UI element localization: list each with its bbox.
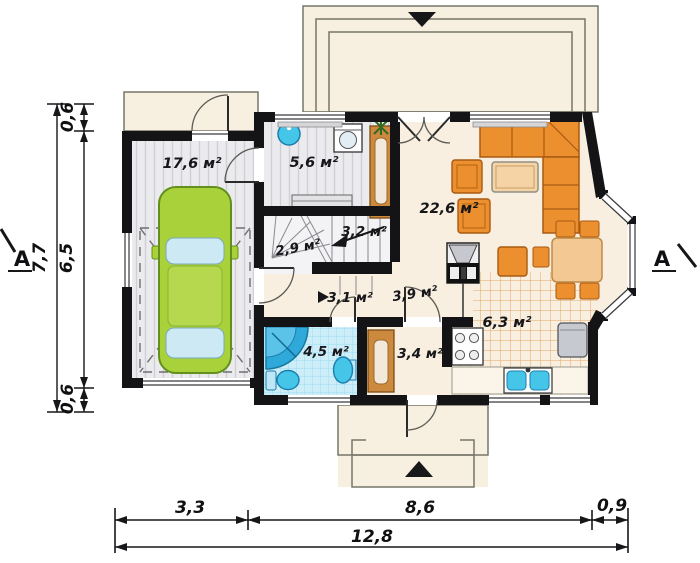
entrance-porch [303,6,598,112]
dim-left-total: 7,7 [30,243,50,273]
toilet-bowl [277,371,299,390]
bathroom-window [288,395,350,405]
living-area-label: 22,6 м² [419,201,479,217]
dining-chair [533,247,549,267]
utility-window [275,112,345,127]
garage-window [122,233,132,287]
dining-chair [580,221,599,237]
kitchen-area-label: 6,3 м² [483,315,533,331]
washing-machine-door [340,132,357,149]
toilet-tank [266,371,276,390]
burner [469,333,478,342]
pouf [498,247,527,276]
garage-gate [143,378,250,388]
dressing-area-label: 3,4 м² [397,346,443,362]
car-roof [168,266,222,326]
fridge [558,323,587,357]
stove [452,328,483,365]
utility-area-label: 5,6 м² [290,155,340,171]
dimension-left: 0,6 6,5 0,6 7,7 [30,102,94,414]
dim-bottom-left: 3,3 [175,498,205,518]
dining-chair [556,283,575,299]
dressing-wardrobe-door [374,340,388,384]
burner [469,350,478,359]
kitchen-window-1 [489,395,540,405]
dim-left-middle: 6,5 [57,243,77,273]
dining-chair [556,221,575,237]
back-porch [338,405,488,487]
dim-bottom-right: 0,9 [597,496,627,516]
dim-left-bottom: 0,6 [58,384,78,414]
hall-area-label: 3,1 м² [327,290,373,306]
burner [455,333,464,342]
car [152,187,238,373]
section-letter-right: A [654,247,671,271]
garage-canopy [124,92,258,131]
dining-table [552,238,602,282]
dim-bottom-middle: 8,6 [405,498,435,518]
dimension-bottom: 3,3 8,6 0,9 12,8 [115,496,628,553]
dining-chair [580,283,599,299]
floor-plan-page: 17,6 м² 5,6 м² 2,9 м² 3,2 м² 22,6 м² 3,1… [0,0,700,563]
car-rear-window [166,238,224,264]
section-marker-left: A [1,229,32,271]
sink-bowl-left [507,371,526,390]
sink-bowl-right [530,371,549,390]
car-windshield [166,328,224,358]
fireplace [447,243,479,283]
living-window [470,112,550,127]
dim-bottom-total: 12,8 [351,527,393,547]
stairs-area-label: 3,2 м² [341,224,387,240]
bathroom-area-label: 4,5 м² [302,344,349,360]
garage-area-label: 17,6 м² [162,156,222,172]
kitchen-window-2 [550,395,590,405]
section-marker-right: A [652,244,696,271]
section-letter-left: A [14,247,31,271]
floor-plan-drawing: 17,6 м² 5,6 м² 2,9 м² 3,2 м² 22,6 м² 3,1… [0,0,700,563]
washbasin [334,357,353,383]
dim-left-top: 0,6 [58,102,78,132]
utility-wardrobe-door [375,138,387,204]
dressing-fixtures [368,330,394,392]
sink-faucet [526,368,531,373]
burner [455,350,464,359]
